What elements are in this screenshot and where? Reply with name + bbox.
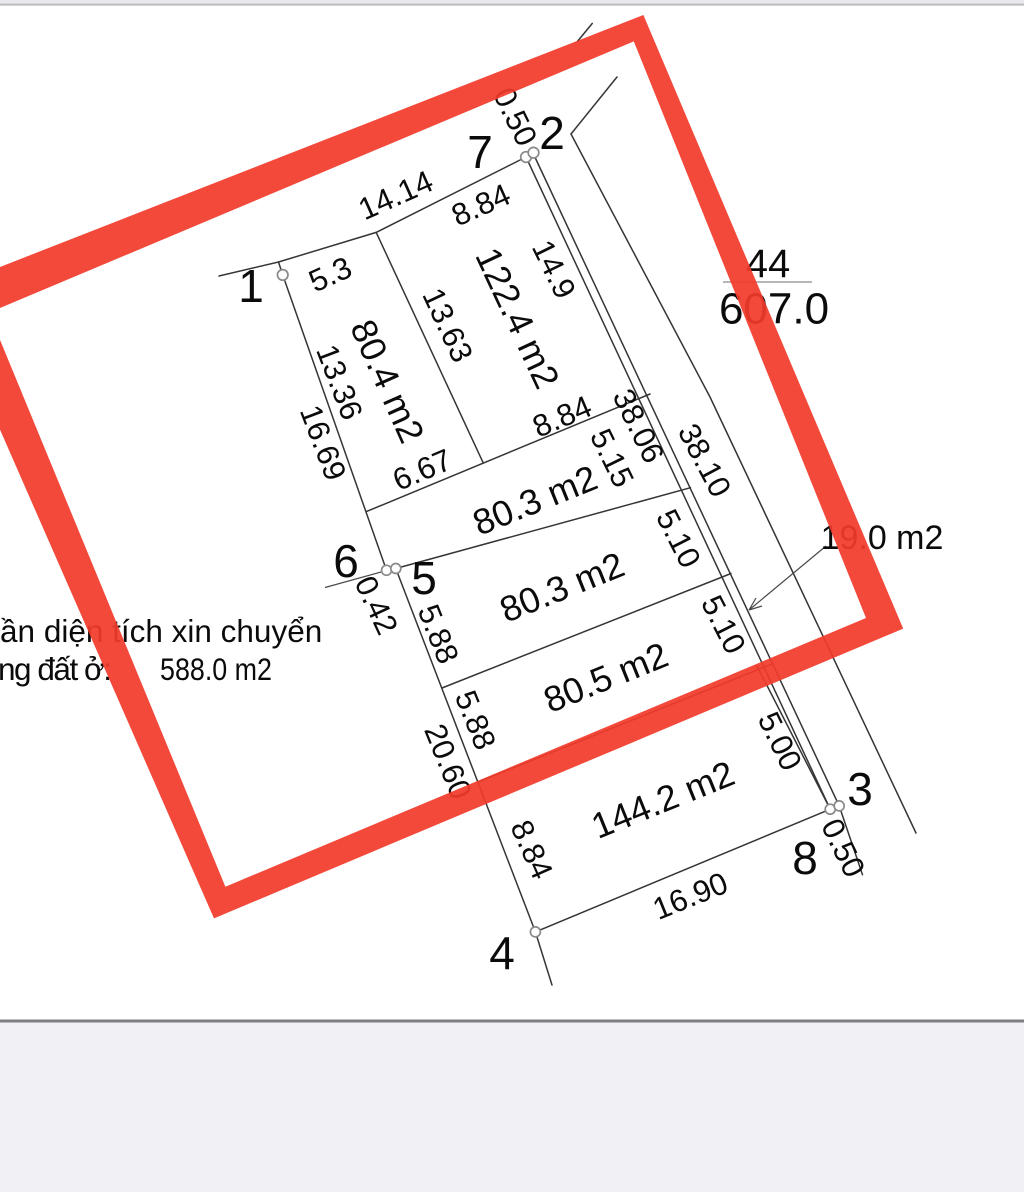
svg-text:7: 7: [467, 126, 493, 178]
svg-text:5: 5: [411, 552, 437, 604]
svg-text:1: 1: [238, 260, 264, 312]
svg-text:ng đất ở:: ng đất ở:: [0, 651, 112, 687]
svg-text:3: 3: [847, 763, 873, 815]
svg-text:8: 8: [792, 832, 818, 884]
svg-text:Phần diện tích xin chuyển: Phần diện tích xin chuyển: [0, 613, 322, 649]
svg-text:588.0 m2: 588.0 m2: [160, 651, 272, 687]
svg-text:2: 2: [539, 107, 565, 159]
svg-text:4: 4: [489, 927, 515, 979]
svg-text:6: 6: [333, 535, 359, 587]
